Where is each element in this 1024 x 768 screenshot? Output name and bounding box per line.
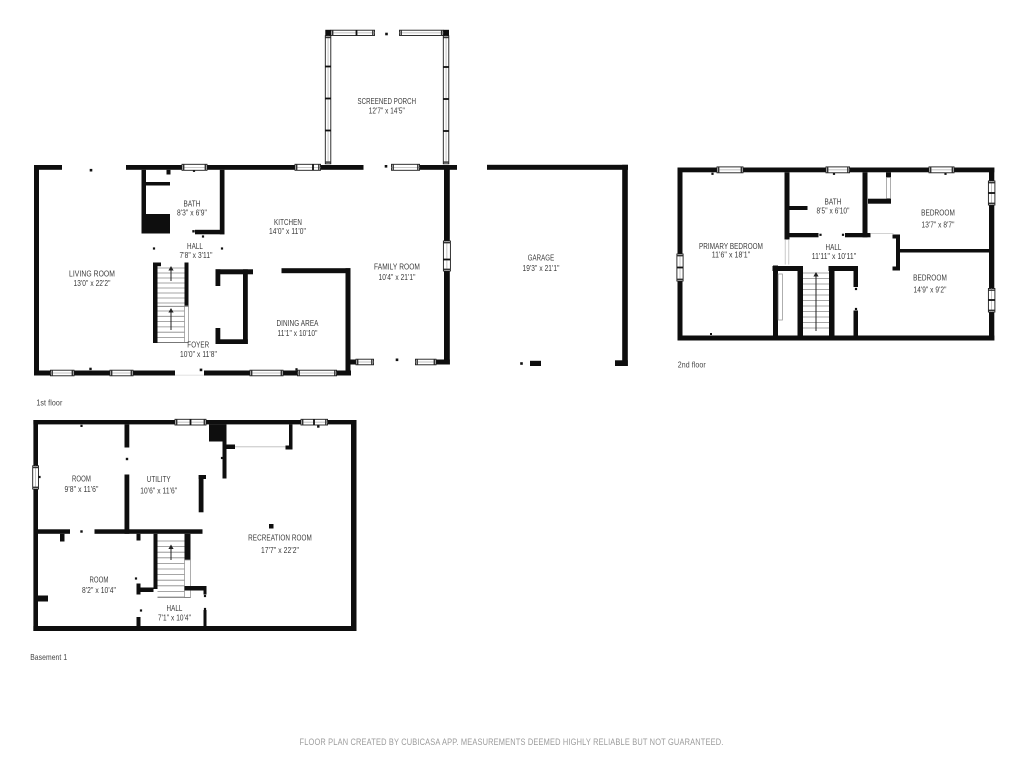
svg-text:HALL: HALL [167, 603, 183, 613]
svg-text:7'8" x 3'11": 7'8" x 3'11" [180, 251, 213, 260]
svg-text:ROOM: ROOM [90, 574, 109, 584]
svg-text:HALL: HALL [826, 242, 842, 252]
svg-text:ROOM: ROOM [72, 473, 91, 483]
svg-text:14'9" x 9'2": 14'9" x 9'2" [914, 285, 947, 294]
svg-text:KITCHEN: KITCHEN [274, 217, 302, 227]
svg-text:11'6" x 18'1": 11'6" x 18'1" [712, 251, 751, 260]
svg-text:LIVING ROOM: LIVING ROOM [69, 268, 115, 278]
svg-text:Basement 1: Basement 1 [30, 652, 67, 662]
svg-text:14'0" x 11'0": 14'0" x 11'0" [269, 227, 306, 236]
svg-text:9'8" x 11'6": 9'8" x 11'6" [65, 485, 99, 494]
svg-text:7'1" x 10'4": 7'1" x 10'4" [158, 613, 191, 622]
svg-text:12'7" x 14'5": 12'7" x 14'5" [369, 106, 405, 115]
svg-text:FOYER: FOYER [187, 339, 209, 349]
svg-text:SCREENED PORCH: SCREENED PORCH [358, 96, 417, 106]
svg-text:11'11" x 10'11": 11'11" x 10'11" [812, 252, 856, 261]
svg-text:19'3" x 21'1": 19'3" x 21'1" [523, 264, 560, 273]
svg-text:8'3" x 6'9": 8'3" x 6'9" [177, 208, 207, 217]
svg-text:BATH: BATH [184, 198, 201, 208]
svg-text:FLOOR PLAN CREATED BY CUBICASA: FLOOR PLAN CREATED BY CUBICASA APP. MEAS… [300, 737, 724, 747]
svg-text:FAMILY ROOM: FAMILY ROOM [374, 261, 420, 271]
svg-text:17'7" x 22'2": 17'7" x 22'2" [261, 546, 299, 555]
svg-text:10'6" x 11'6": 10'6" x 11'6" [140, 486, 177, 495]
svg-text:2nd floor: 2nd floor [678, 359, 706, 369]
svg-text:13'7" x 8'7": 13'7" x 8'7" [922, 220, 955, 229]
svg-text:HALL: HALL [187, 241, 203, 251]
svg-text:PRIMARY BEDROOM: PRIMARY BEDROOM [699, 241, 763, 251]
svg-text:BATH: BATH [825, 196, 842, 206]
svg-text:GARAGE: GARAGE [528, 252, 555, 262]
svg-text:10'4" x 21'1": 10'4" x 21'1" [379, 273, 416, 282]
svg-text:10'0" x 11'8": 10'0" x 11'8" [180, 350, 217, 359]
svg-text:UTILITY: UTILITY [147, 474, 171, 484]
svg-text:8'2" x 10'4": 8'2" x 10'4" [82, 586, 116, 595]
svg-text:RECREATION ROOM: RECREATION ROOM [248, 532, 312, 542]
svg-text:13'0" x 22'2": 13'0" x 22'2" [74, 279, 111, 288]
svg-text:11'1" x 10'10": 11'1" x 10'10" [278, 329, 318, 338]
svg-text:BEDROOM: BEDROOM [913, 272, 947, 282]
svg-text:1st floor: 1st floor [36, 397, 62, 407]
svg-text:DINING AREA: DINING AREA [276, 318, 318, 328]
svg-text:BEDROOM: BEDROOM [921, 207, 955, 217]
svg-text:8'5" x 6'10": 8'5" x 6'10" [817, 206, 850, 215]
